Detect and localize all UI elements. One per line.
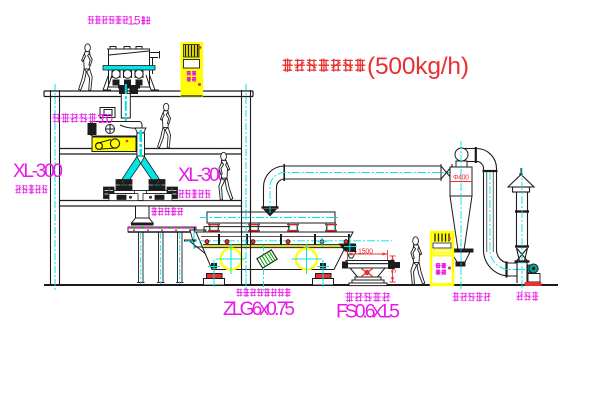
svg-text:350: 350 bbox=[97, 112, 113, 126]
svg-text:1500: 1500 bbox=[358, 249, 373, 256]
svg-text:FS0.6x1.5: FS0.6x1.5 bbox=[336, 301, 400, 323]
svg-text:1.5: 1.5 bbox=[128, 14, 141, 28]
svg-text:ZLG6x0.75: ZLG6x0.75 bbox=[223, 299, 295, 320]
svg-text:XL-300: XL-300 bbox=[13, 161, 63, 182]
svg-text:(500kg/h): (500kg/h) bbox=[367, 53, 469, 80]
svg-text:Φ400: Φ400 bbox=[453, 175, 469, 182]
